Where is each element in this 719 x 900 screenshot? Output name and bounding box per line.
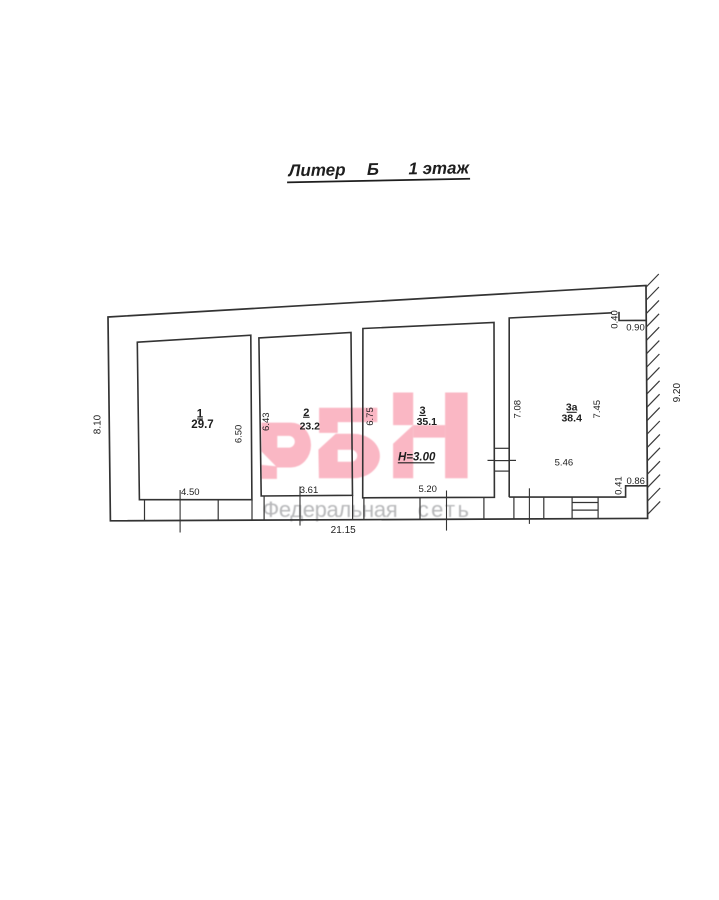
svg-text:0.40: 0.40: [609, 310, 620, 329]
svg-text:8.10: 8.10: [92, 414, 103, 434]
svg-text:9.20: 9.20: [672, 383, 683, 403]
svg-text:6.43: 6.43: [261, 412, 272, 431]
svg-text:Литер: Литер: [287, 160, 346, 180]
svg-text:6.50: 6.50: [234, 425, 245, 444]
svg-text:23.2: 23.2: [300, 420, 321, 432]
svg-text:6.75: 6.75: [365, 407, 376, 426]
svg-text:38.4: 38.4: [561, 413, 582, 425]
svg-text:35.1: 35.1: [417, 416, 438, 428]
svg-text:Н=3.00: Н=3.00: [398, 452, 436, 464]
svg-text:0.86: 0.86: [626, 476, 645, 487]
svg-text:Федеральная: Федеральная: [263, 497, 398, 522]
svg-text:1 этаж: 1 этаж: [408, 158, 470, 178]
svg-text:21.15: 21.15: [331, 525, 356, 536]
svg-text:сеть: сеть: [418, 497, 472, 522]
svg-text:7.45: 7.45: [592, 400, 603, 419]
svg-text:29.7: 29.7: [191, 419, 213, 431]
svg-text:0.90: 0.90: [626, 322, 645, 333]
svg-text:3.61: 3.61: [300, 485, 319, 496]
svg-text:5.20: 5.20: [418, 484, 437, 495]
svg-text:Б: Б: [367, 160, 379, 179]
svg-text:4.50: 4.50: [181, 487, 200, 498]
svg-text:5.46: 5.46: [555, 458, 574, 469]
svg-text:7.08: 7.08: [512, 400, 523, 419]
svg-text:0.41: 0.41: [613, 476, 624, 495]
